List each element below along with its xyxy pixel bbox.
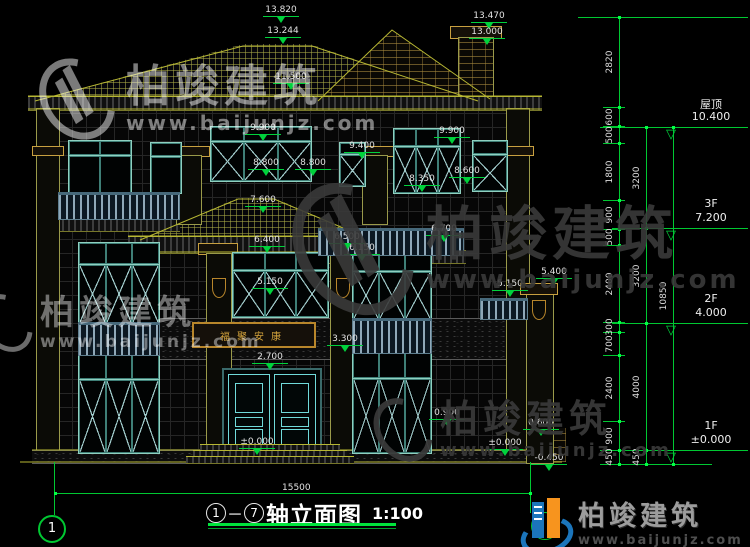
window-transom	[69, 141, 131, 156]
elevation-marker-triangle	[463, 178, 471, 184]
dim-chain-value: 900	[605, 206, 615, 223]
elevation-marker-triangle	[287, 84, 295, 90]
elevation-label: 0.600	[528, 418, 554, 428]
floor-level-line	[640, 450, 748, 451]
window-pane	[405, 351, 431, 378]
window-pane	[106, 265, 133, 323]
dim-chain-value: 1800	[605, 160, 615, 183]
balcony-railing	[58, 192, 180, 220]
window-pane	[132, 243, 159, 264]
elevation-label: 8.600	[454, 166, 480, 176]
window-pane	[405, 254, 431, 271]
elevation-marker-triangle	[262, 170, 270, 176]
elevation-label: 3.300	[332, 334, 358, 344]
door-step-3	[186, 456, 354, 464]
elevation-marker-triangle	[506, 291, 514, 297]
dim-chain-value: 2400	[605, 272, 615, 295]
window-pane	[132, 380, 159, 453]
dim-chain-line	[673, 127, 674, 464]
elevation-marker-triangle	[266, 364, 274, 370]
title-axis-end: 7	[244, 503, 264, 523]
dim-chain-tick	[603, 355, 625, 356]
fence-pillar-ornament	[532, 300, 546, 320]
floor-level-triangle: ▽	[666, 128, 676, 141]
floor-label: 2F	[676, 292, 746, 305]
elevation-marker-triangle	[341, 346, 349, 352]
window-pane	[405, 379, 431, 453]
window-body	[79, 265, 159, 323]
window-pane	[394, 147, 416, 193]
overall-width-dimension: 15500	[282, 483, 311, 493]
elevation-label: -0.450	[534, 453, 563, 463]
floor-level-triangle: ▽	[666, 451, 676, 464]
elevation-marker-triangle	[418, 186, 426, 192]
elevation-marker-triangle	[501, 450, 509, 456]
window-pane	[278, 127, 311, 141]
window-transom	[473, 141, 507, 155]
title-axis-start: 1	[206, 503, 226, 523]
dim-chain-value: 600	[605, 108, 615, 125]
dim-chain-value: 450	[632, 448, 642, 465]
elevation-label: 5.150	[257, 277, 283, 287]
elevation-label: 9.900	[439, 126, 465, 136]
elevation-label: 2.700	[257, 352, 283, 362]
dim-chain-grip	[618, 228, 621, 231]
dimension-endpoint	[529, 492, 532, 495]
elevation-label: 13.820	[265, 5, 297, 15]
dim-chain-value: 10850	[659, 281, 669, 310]
dim-chain-grip	[618, 321, 621, 324]
window-pane	[379, 254, 405, 271]
elevation-label: ±0.000	[488, 438, 521, 448]
window-pane	[353, 272, 379, 319]
elevation-label: 5.400	[541, 267, 567, 277]
elevation-label: 9.900	[250, 123, 276, 133]
floor-label: 1F	[676, 419, 746, 432]
window-body	[151, 157, 181, 193]
dim-chain-tick	[630, 127, 652, 128]
window-pane	[379, 351, 405, 378]
elevation-label: 8.350	[409, 174, 435, 184]
elevation-label: 9.400	[349, 141, 375, 151]
elevation-label: 6.500	[334, 232, 360, 242]
pillar-ornament-left	[212, 278, 226, 298]
eave-cornice	[28, 96, 542, 111]
window-pane	[69, 156, 100, 196]
window-pane	[379, 272, 405, 319]
window-transom	[79, 353, 159, 380]
elevation-marker-triangle	[545, 465, 553, 471]
dim-chain-value: 500	[605, 126, 615, 143]
left-pilaster-cap	[32, 146, 64, 156]
window-pane	[79, 243, 106, 264]
window-pane	[265, 253, 297, 270]
dim-chain-tick	[603, 17, 625, 18]
dim-chain-grip	[645, 463, 648, 466]
window-pane	[353, 254, 379, 271]
dim-chain-grip	[618, 463, 621, 466]
window-pane	[405, 272, 431, 319]
stone-band-right	[430, 318, 506, 360]
elevation-marker-triangle	[537, 430, 545, 436]
window-pane	[100, 156, 131, 196]
window-pane	[79, 353, 106, 379]
title-underline-thick	[208, 523, 396, 526]
window-pane	[151, 157, 181, 193]
elevation-marker-triangle	[448, 138, 456, 144]
dimension-line	[55, 493, 532, 494]
dim-chain-grip	[618, 244, 621, 247]
dim-chain-grip	[645, 322, 648, 325]
window-transom	[79, 243, 159, 265]
dim-chain-grip	[618, 16, 621, 19]
dim-chain-grip	[618, 142, 621, 145]
window-pane	[296, 271, 328, 317]
dim-chain-line	[646, 127, 647, 464]
dimension-endpoint	[54, 492, 57, 495]
dim-chain-grip	[618, 125, 621, 128]
elevation-marker-triangle	[259, 207, 267, 213]
dim-chain-value: 450	[605, 448, 615, 465]
window-pane	[79, 265, 106, 323]
dim-chain-grip	[645, 126, 648, 129]
elevation-label: 13.244	[267, 26, 299, 36]
dimension-line	[530, 462, 531, 513]
pillar-ornament-right	[336, 278, 350, 298]
dim-chain-value: 700	[605, 335, 615, 352]
window-pane	[106, 243, 133, 264]
title-axis-separator: －	[227, 501, 243, 525]
dim-chain-tick	[603, 421, 625, 422]
floor-elevation: 4.000	[676, 306, 746, 319]
elevation-label: 8.800	[253, 158, 279, 168]
dim-chain-grip	[645, 449, 648, 452]
window-body	[353, 379, 431, 453]
dim-chain-tick	[630, 323, 652, 324]
window-pane	[69, 141, 100, 155]
dim-chain-value: 300	[605, 318, 615, 335]
elevation-marker-triangle	[266, 289, 274, 295]
window-pane	[233, 253, 265, 270]
title-underline-thin	[208, 528, 396, 529]
elevation-label: 13.470	[473, 11, 505, 21]
dim-chain-grip	[618, 106, 621, 109]
dim-chain-grip	[618, 199, 621, 202]
window-body	[69, 156, 131, 196]
window-pane	[100, 141, 131, 155]
dim-chain-value: 3200	[632, 264, 642, 287]
window-pane	[353, 379, 379, 453]
dim-chain-tick	[630, 228, 652, 229]
window-body	[353, 272, 431, 319]
title-scale: 1:100	[372, 504, 423, 523]
dim-chain-value: 2400	[605, 377, 615, 400]
floor-level-triangle: ▽	[666, 229, 676, 242]
balcony-railing	[352, 318, 432, 354]
window-transom	[233, 253, 328, 271]
floor-label: 3F	[676, 197, 746, 210]
dim-chain-grip	[618, 449, 621, 452]
window-pane	[353, 351, 379, 378]
elevation-label: 8.800	[300, 158, 326, 168]
window-pane	[151, 143, 181, 156]
window-pane	[379, 379, 405, 453]
window-body	[394, 147, 460, 193]
window-pane	[132, 265, 159, 323]
elevation-marker-triangle	[279, 38, 287, 44]
balcony-railing	[78, 322, 160, 356]
dim-chain-grip	[645, 227, 648, 230]
axis-bubble-right-partial	[531, 512, 559, 540]
elevation-label: 7.600	[250, 195, 276, 205]
elevation-label: 13.000	[471, 27, 503, 37]
dim-chain-grip	[618, 331, 621, 334]
elevation-label: ±0.000	[240, 437, 273, 447]
elevation-marker-triangle	[309, 170, 317, 176]
elevation-label: 6.400	[254, 235, 280, 245]
floor-elevation: ±0.000	[676, 433, 746, 446]
chimney	[458, 37, 494, 100]
brand-logo-text: 柏竣建筑	[578, 494, 743, 533]
dim-chain-grip	[618, 354, 621, 357]
window-body	[340, 155, 365, 186]
window	[78, 352, 160, 454]
window-pane	[211, 142, 244, 181]
window	[352, 253, 432, 320]
dim-chain-tick	[603, 200, 625, 201]
dim-chain-value: 4000	[632, 375, 642, 398]
window-pane	[473, 141, 507, 154]
elevation-marker-triangle	[358, 255, 366, 261]
brand-logo-site: www.baijunjz.com	[578, 533, 743, 547]
name-plaque: 福聚安康	[192, 322, 316, 348]
dimension-line	[54, 462, 55, 515]
dim-chain-value: 3200	[632, 166, 642, 189]
window	[150, 142, 182, 194]
dim-chain-value: 500	[605, 228, 615, 245]
window-pane	[106, 380, 133, 453]
window	[352, 350, 432, 454]
elevation-marker-triangle	[263, 247, 271, 253]
window-transom	[353, 351, 431, 379]
axis-bubble-1: 1	[38, 515, 66, 543]
window-pane	[79, 380, 106, 453]
left-corner-pilaster	[36, 108, 60, 452]
fence-railing	[480, 298, 528, 320]
window	[78, 242, 160, 324]
window-pane	[340, 155, 365, 186]
floor-level-line	[640, 323, 748, 324]
elevation-label: 6.700	[431, 224, 457, 234]
elevation-marker-triangle	[440, 236, 448, 242]
floor-level-line	[640, 228, 748, 229]
elevation-marker-triangle	[483, 39, 491, 45]
window-pane	[211, 127, 244, 141]
dim-chain-value: 900	[605, 427, 615, 444]
elevation-marker-triangle	[253, 449, 261, 455]
window-pane	[106, 353, 133, 379]
elevation-label: 5.150	[497, 279, 523, 289]
elevation-marker-triangle	[550, 279, 558, 285]
dim-chain-value: 2820	[605, 51, 615, 74]
elevation-label: 0.900	[434, 408, 460, 418]
window-pane	[394, 129, 416, 146]
window	[68, 140, 132, 197]
dim-chain-line	[619, 17, 620, 464]
floor-elevation: 7.200	[676, 211, 746, 224]
window-body	[79, 380, 159, 453]
floor-level-triangle: ▽	[666, 324, 676, 337]
elevation-marker-triangle	[259, 135, 267, 141]
elevation-marker-triangle	[443, 420, 451, 426]
elevation-marker-triangle	[277, 17, 285, 23]
elevation-marker-triangle	[358, 153, 366, 159]
window-transom	[151, 143, 181, 157]
floor-elevation: 10.400	[676, 110, 746, 123]
cad-canvas[interactable]: 福聚安康 13.82013.24413.47013.00011.5009.900…	[0, 0, 750, 547]
dim-chain-grip	[618, 420, 621, 423]
elevation-label: 6.150	[349, 243, 375, 253]
window-pane	[132, 353, 159, 379]
plaque-text: 福聚安康	[220, 328, 288, 343]
elevation-label: 11.500	[275, 72, 307, 82]
